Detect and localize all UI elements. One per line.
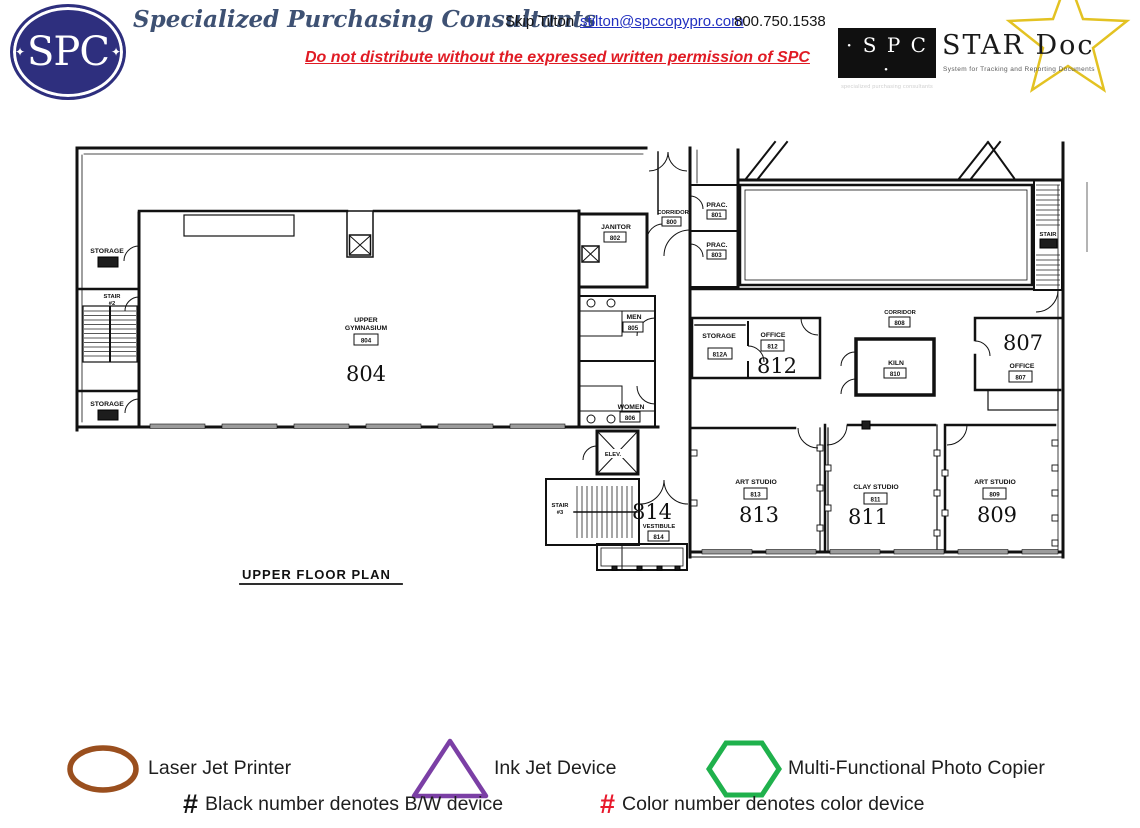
room-label-corridor-800: CORRIDOR xyxy=(657,210,689,216)
room-label-vestibule: VESTIBULE xyxy=(643,524,676,530)
room-label-office-807: OFFICE xyxy=(1010,363,1035,370)
legend-laserjet-icon xyxy=(65,743,141,800)
room-label-prac-801: PRAC. xyxy=(706,202,727,209)
room-label-storage-812a: STORAGE xyxy=(702,333,736,340)
svg-text:809: 809 xyxy=(989,492,1000,499)
room-label-gym-1: UPPER xyxy=(354,317,378,324)
legend-note-color: # Color number denotes color device xyxy=(600,791,924,818)
device-number-814: 814 xyxy=(632,500,672,524)
room-label-stair-ne: STAIR xyxy=(1040,232,1058,238)
svg-text:806: 806 xyxy=(625,415,636,422)
room-label-elevator: ELEV. xyxy=(605,452,622,458)
contact-name: Skip Tilton xyxy=(505,13,574,30)
room-label-stair2: STAIR xyxy=(104,294,122,300)
room-label-women: WOMEN xyxy=(618,404,645,411)
room-number-box xyxy=(98,257,118,267)
room-label-kiln: KILN xyxy=(888,360,904,367)
svg-text:814: 814 xyxy=(653,534,664,541)
device-number-812: 812 xyxy=(757,354,797,378)
room-label-storage-nw: STORAGE xyxy=(90,248,124,255)
stardoc-tagline: System for Tracking and Reporting Docume… xyxy=(943,66,1095,73)
black-hash-icon: # xyxy=(183,791,198,818)
svg-text:811: 811 xyxy=(871,497,882,504)
gym-block-walls xyxy=(77,148,658,430)
svg-text:808: 808 xyxy=(894,320,905,327)
legend-copier-label: Multi-Functional Photo Copier xyxy=(788,757,1045,780)
stardoc-name: STAR Doc xyxy=(942,30,1094,61)
svg-text:812: 812 xyxy=(767,344,778,351)
svg-text:805: 805 xyxy=(628,325,639,332)
room-label-men: MEN xyxy=(626,314,641,321)
entry-porch xyxy=(597,544,687,570)
room-label-clay-811: CLAY STUDIO xyxy=(853,484,898,491)
floor-plan: STORAGE STAIR #2 STORAGE UPPER GYMNASIUM… xyxy=(0,130,1140,600)
red-hash-icon: # xyxy=(600,791,615,818)
device-number-804: 804 xyxy=(346,362,386,386)
svg-text:807: 807 xyxy=(1015,375,1026,382)
stardoc-spc-subtext: specialized purchasing consultants xyxy=(838,84,936,90)
room-label-corridor-808: CORRIDOR xyxy=(884,310,916,316)
room-label-prac-803: PRAC. xyxy=(706,242,727,249)
room-label-storage-sw: STORAGE xyxy=(90,401,124,408)
gym-scoreboard xyxy=(184,215,294,236)
svg-text:813: 813 xyxy=(750,492,761,499)
svg-text:812A: 812A xyxy=(713,352,728,359)
room-label-janitor: JANITOR xyxy=(601,224,631,231)
stair-2 xyxy=(83,306,137,362)
kiln-room xyxy=(856,339,934,395)
room-label-stair3: STAIR xyxy=(552,503,570,509)
legend-inkjet-label: Ink Jet Device xyxy=(494,757,616,780)
svg-text:800: 800 xyxy=(666,219,677,226)
email-link[interactable]: stilton@spccopypro.com xyxy=(580,13,744,30)
legend-note-bw: # Black number denotes B/W device xyxy=(183,791,503,818)
stardoc-spc-text: · S P C · xyxy=(838,33,936,81)
distribution-warning: Do not distribute without the expressed … xyxy=(305,49,810,67)
svg-text:803: 803 xyxy=(711,252,722,259)
stardoc-logo: · S P C · specialized purchasing consult… xyxy=(820,0,1140,96)
svg-text:810: 810 xyxy=(890,371,901,378)
scanned-floor-plan-document: { "header": { "logo": {"text": "SPC", "d… xyxy=(0,0,1140,828)
logo-diamond-icon: ✦ xyxy=(15,46,25,58)
room-label-art-809: ART STUDIO xyxy=(974,479,1016,486)
room-label-gym-2: GYMNASIUM xyxy=(345,325,388,332)
svg-text:802: 802 xyxy=(610,235,621,242)
device-number-813: 813 xyxy=(739,503,779,527)
plan-title: UPPER FLOOR PLAN xyxy=(242,567,391,582)
large-room xyxy=(740,185,1032,285)
spc-logo: ✦ SPC ✦ xyxy=(10,4,126,100)
room-label-art-813: ART STUDIO xyxy=(735,479,777,486)
device-number-809: 809 xyxy=(977,503,1017,527)
room-label-office-812: OFFICE xyxy=(761,332,786,339)
room-number-box xyxy=(1040,239,1057,248)
phone-number: 800.750.1538 xyxy=(734,13,826,30)
room-number-box xyxy=(98,410,118,420)
device-number-811: 811 xyxy=(848,505,888,529)
svg-text:#3: #3 xyxy=(557,510,564,516)
legend-laserjet-label: Laser Jet Printer xyxy=(148,757,291,780)
room-number-gym: 804 xyxy=(361,338,372,345)
stardoc-spc-box: · S P C · specialized purchasing consult… xyxy=(838,28,936,78)
roof-braces xyxy=(745,142,1014,180)
door-swings xyxy=(124,152,1058,504)
device-number-807: 807 xyxy=(1003,331,1043,355)
svg-text:#2: #2 xyxy=(109,301,115,307)
logo-diamond-icon: ✦ xyxy=(111,46,121,58)
room-labels: STORAGE STAIR #2 STORAGE UPPER GYMNASIUM… xyxy=(90,202,1057,541)
logo-text: SPC xyxy=(25,32,111,72)
svg-text:801: 801 xyxy=(711,212,722,219)
